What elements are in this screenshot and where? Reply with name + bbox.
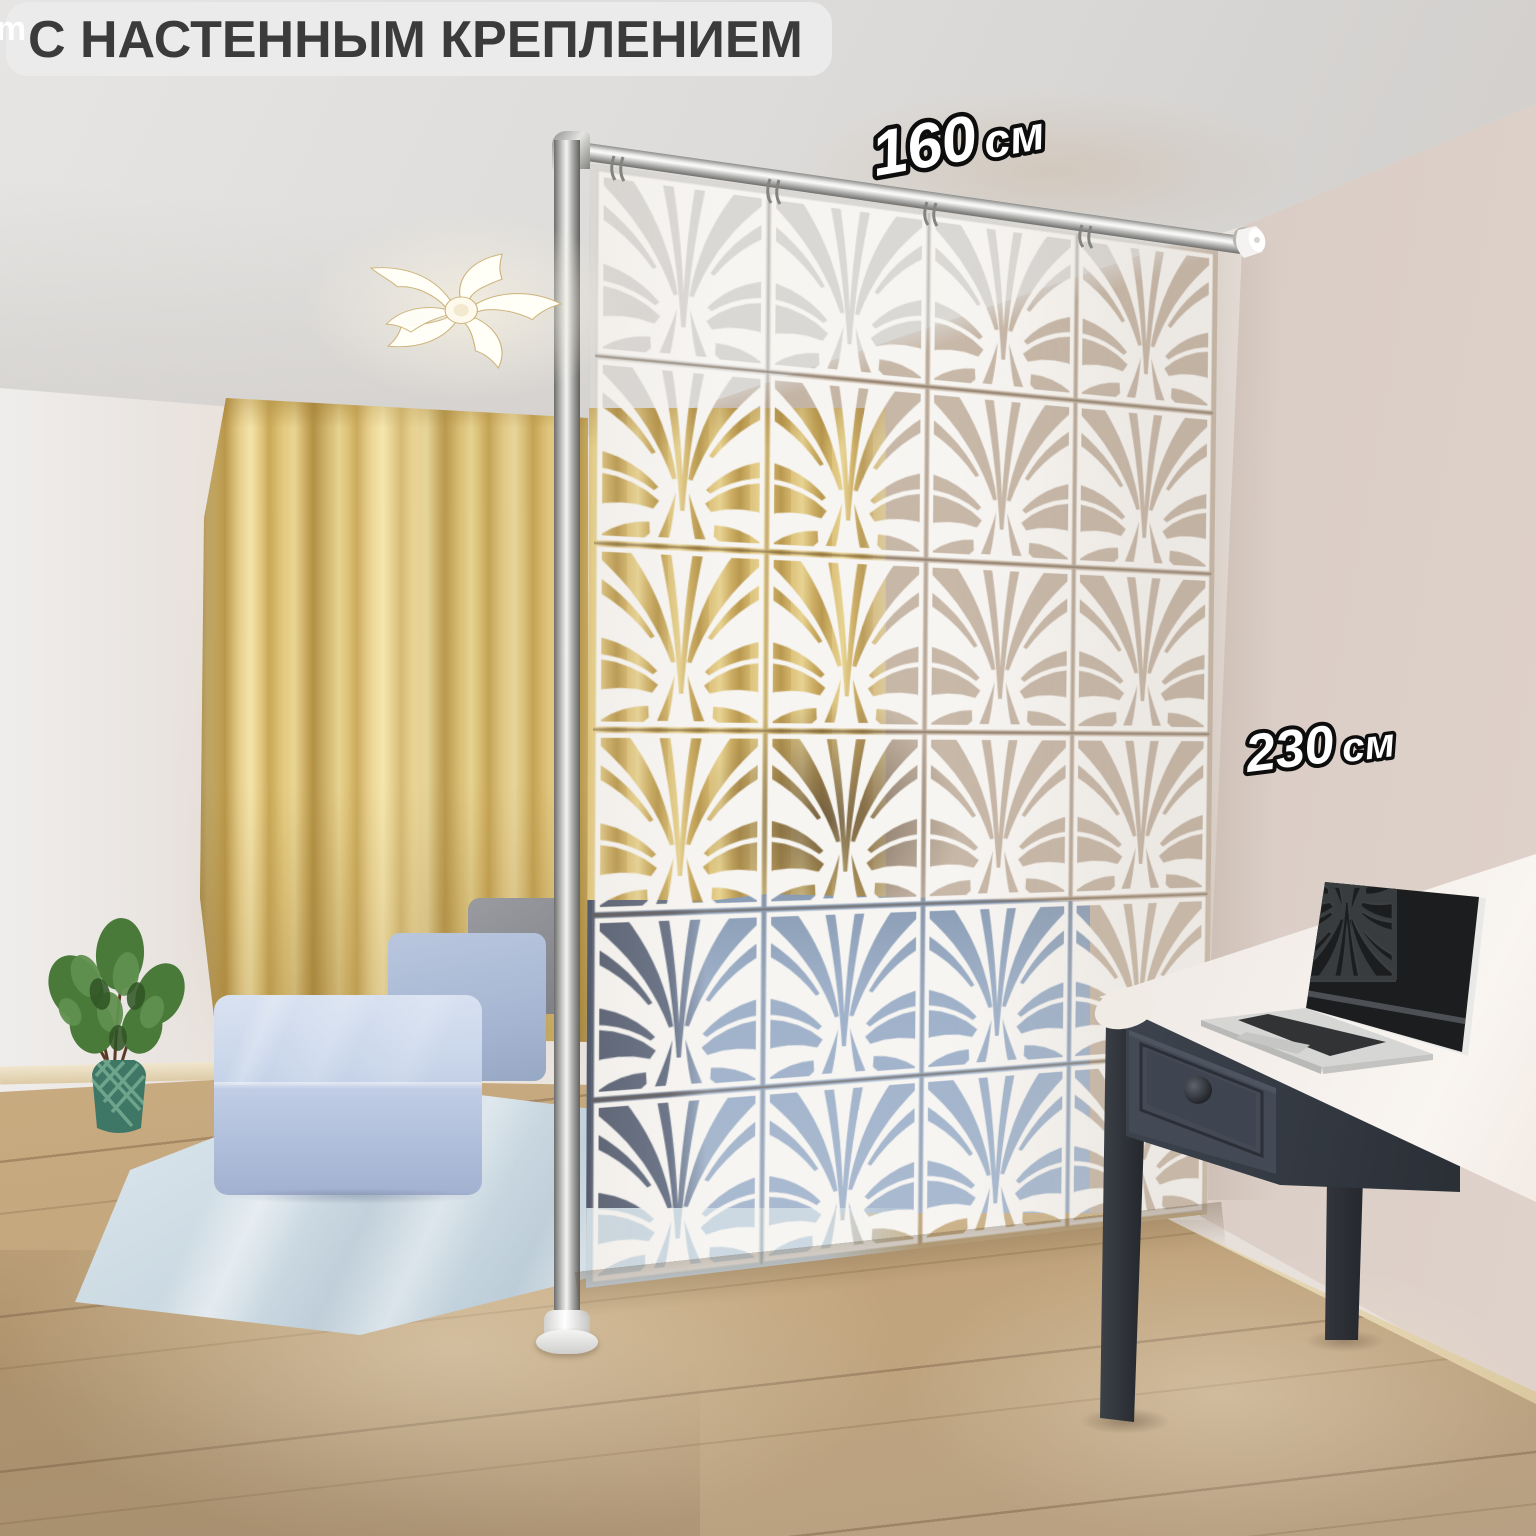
svg-text:см: см: [1339, 719, 1397, 771]
svg-text:см: см: [979, 106, 1048, 169]
svg-text:С НАСТЕННЫМ КРЕПЛЕНИЕМ: С НАСТЕННЫМ КРЕПЛЕНИЕМ: [28, 11, 803, 69]
svg-text:230: 230: [1241, 715, 1337, 784]
svg-text:160: 160: [866, 103, 982, 190]
svg-text:m: m: [0, 10, 26, 48]
